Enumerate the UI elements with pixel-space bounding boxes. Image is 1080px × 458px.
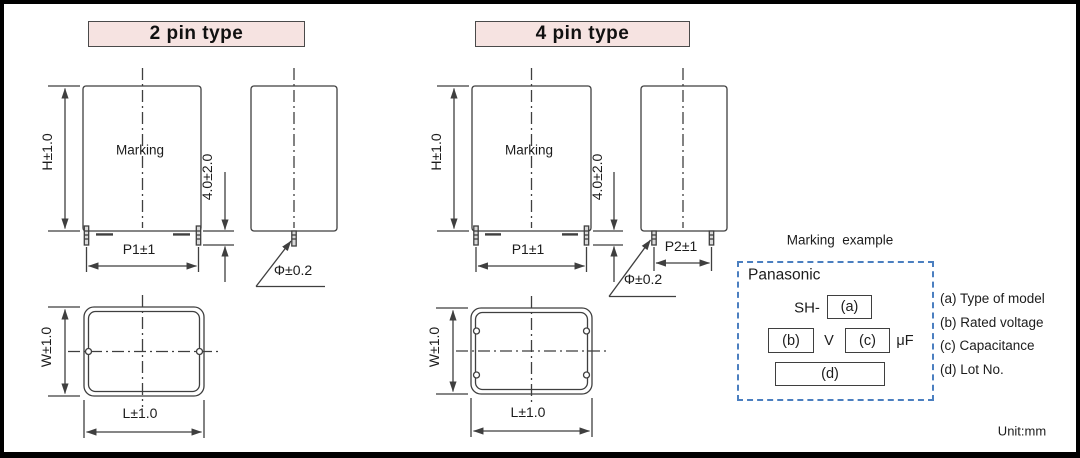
four-pin-side-lead-left [652,231,656,245]
marking-example-title: Marking example [787,233,894,247]
four-pin-bottom-pin-top-right [584,328,590,334]
legend-type-of-model: (a) Type of model [940,291,1045,306]
marking-field-d-box: (d) [775,362,885,386]
marking-field-d-text: (d) [821,366,839,382]
capacitor-dimension-figure: 2 pin type 4 pin type H±1.0 Marking 4.0±… [0,0,1080,458]
two-pin-front-lead-right [196,226,200,245]
two-pin-height-label: H±1.0 [40,133,54,170]
two-pin-section-title: 2 pin type [88,21,305,47]
two-pin-bottom-view [68,295,219,407]
marking-field-c-text: (c) [859,333,876,349]
legend-rated-voltage: (b) Rated voltage [940,315,1044,330]
two-pin-marking-label: Marking [116,143,164,157]
legend-capacitance: (c) Capacitance [940,338,1035,353]
two-pin-lead-diameter-label: Φ±0.2 [274,263,312,277]
two-pin-width-label: W±1.0 [39,327,53,367]
unit-note: Unit:mm [998,425,1046,438]
two-pin-section-title-text: 2 pin type [150,23,244,45]
four-pin-section-title-text: 4 pin type [536,23,630,45]
four-pin-lead-length-label: 4.0±2.0 [590,154,604,201]
two-pin-bottom-pin-right [197,349,203,355]
four-pin-width-label: W±1.0 [427,327,441,367]
marking-model-prefix: SH- [794,301,820,316]
four-pin-bottom-pin-bottom-right [584,372,590,378]
marking-field-c-box: (c) [845,328,890,353]
two-pin-length-label: L±1.0 [123,406,158,420]
four-pin-side-body [641,86,727,231]
four-pin-pitch1-label: P1±1 [512,242,545,256]
two-pin-lead-length-label: 4.0±2.0 [200,154,214,201]
two-pin-pitch1-label: P1±1 [123,242,156,256]
four-pin-bottom-pin-top-left [474,328,480,334]
four-pin-side-view [641,68,727,245]
two-pin-bottom-pin-left [86,349,92,355]
four-pin-section-title: 4 pin type [475,21,690,47]
two-pin-front-lead-left [84,226,88,245]
marking-capacitance-unit: μF [896,334,913,349]
four-pin-marking-label: Marking [505,143,553,157]
four-pin-lead-diameter-label: Φ±0.2 [624,272,662,286]
four-pin-pitch2-label: P2±1 [665,239,698,253]
four-pin-bottom-view [456,296,606,406]
four-pin-height-label: H±1.0 [429,133,443,170]
marking-field-b-box: (b) [768,328,814,353]
four-pin-bottom-pin-bottom-left [474,372,480,378]
two-pin-side-lead [292,231,296,246]
marking-field-b-text: (b) [782,333,800,349]
four-pin-front-lead-right [584,226,588,245]
marking-voltage-unit: V [824,334,834,349]
marking-field-a-text: (a) [841,299,859,315]
four-pin-front-lead-left [474,226,478,245]
marking-brand: Panasonic [748,267,820,283]
four-pin-side-lead-right [709,231,713,245]
four-pin-length-label: L±1.0 [511,405,546,419]
legend-lot-no: (d) Lot No. [940,362,1004,377]
marking-field-a-box: (a) [827,295,872,319]
two-pin-side-view [251,68,337,246]
